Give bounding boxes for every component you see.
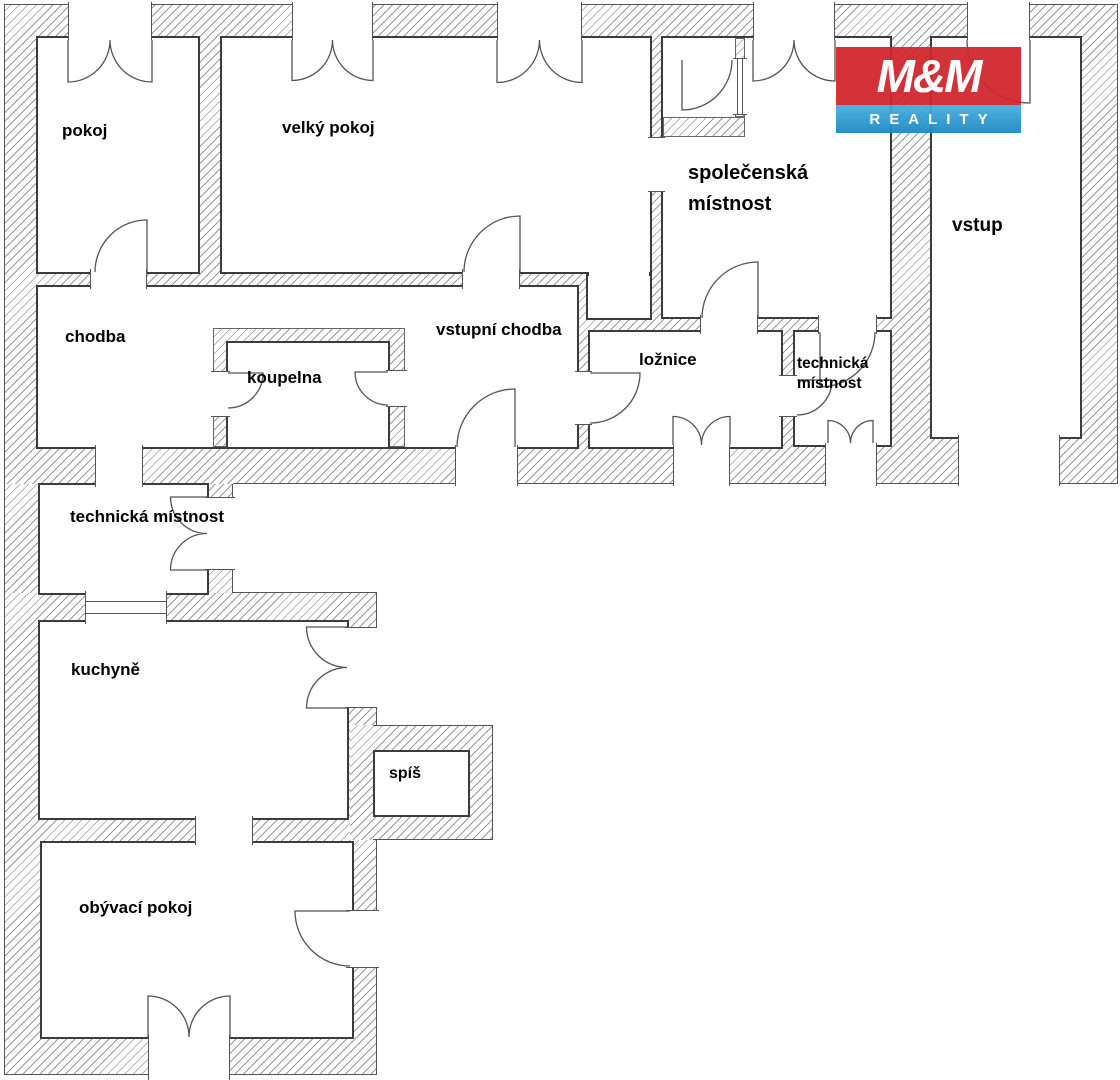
room-label-technicka-right-line2: místnost bbox=[797, 374, 869, 394]
mm-reality-logo-title: M&M bbox=[877, 49, 981, 103]
mm-reality-logo-mark: M&M bbox=[836, 47, 1021, 105]
room-label-loznice: ložnice bbox=[639, 350, 697, 370]
room-label-technicka-right-line1: technická bbox=[797, 354, 869, 374]
room-label-technicka-right: technická místnost bbox=[797, 354, 869, 394]
room-label-technicka-left: technická místnost bbox=[70, 507, 224, 527]
room-label-spolecenska: společenská místnost bbox=[688, 158, 808, 220]
floor-plan: pokoj velký pokoj společenská místnost v… bbox=[0, 0, 1120, 1080]
room-label-pokoj: pokoj bbox=[62, 121, 107, 141]
room-label-spolecenska-line2: místnost bbox=[688, 189, 808, 220]
room-label-velky-pokoj: velký pokoj bbox=[282, 118, 375, 138]
room-label-koupelna: koupelna bbox=[247, 368, 322, 388]
mm-reality-logo-subtitle: REALITY bbox=[869, 111, 996, 128]
mm-reality-logo: M&M REALITY bbox=[836, 47, 1021, 133]
room-label-obyvaci: obývací pokoj bbox=[79, 898, 192, 918]
room-label-vstup: vstup bbox=[952, 215, 1003, 238]
room-label-kuchyne: kuchyně bbox=[71, 660, 140, 680]
mm-reality-logo-banner: REALITY bbox=[836, 105, 1021, 133]
room-label-vstupni-chodba: vstupní chodba bbox=[436, 320, 562, 340]
room-label-spolecenska-line1: společenská bbox=[688, 158, 808, 189]
room-label-chodba: chodba bbox=[65, 327, 125, 347]
room-label-spis: spíš bbox=[389, 764, 421, 783]
